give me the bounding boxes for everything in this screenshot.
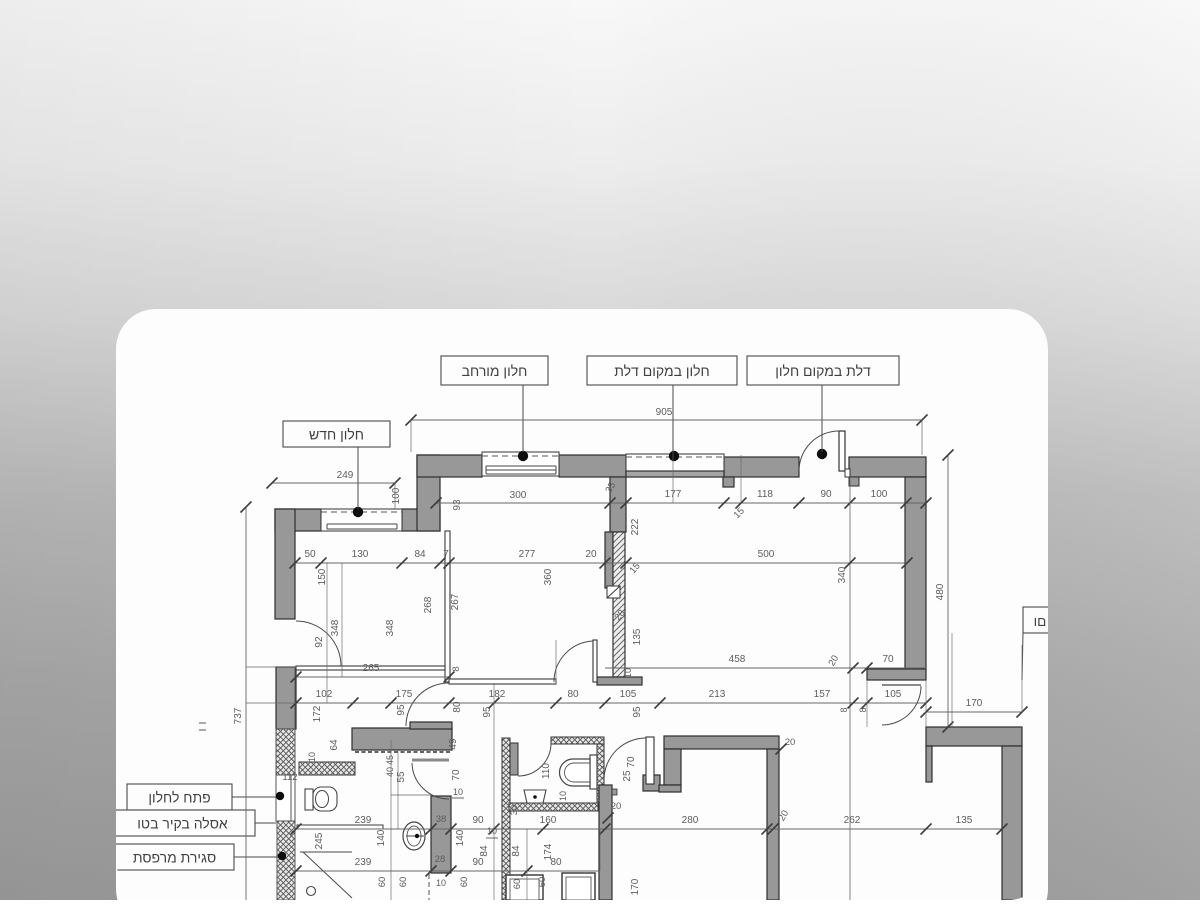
svg-text:55: 55 bbox=[396, 771, 407, 783]
svg-text:280: 280 bbox=[682, 815, 699, 826]
svg-text:8: 8 bbox=[839, 707, 849, 712]
svg-text:100: 100 bbox=[391, 487, 402, 504]
svg-text:50: 50 bbox=[304, 549, 316, 560]
svg-text:175: 175 bbox=[396, 689, 413, 700]
svg-text:30: 30 bbox=[509, 805, 520, 816]
svg-text:300: 300 bbox=[510, 490, 527, 501]
svg-text:135: 135 bbox=[956, 815, 973, 826]
svg-text:170: 170 bbox=[630, 878, 641, 895]
svg-text:10: 10 bbox=[623, 668, 633, 678]
svg-text:חלון חדש: חלון חדש bbox=[309, 427, 364, 443]
svg-text:130: 130 bbox=[352, 549, 369, 560]
svg-text:64: 64 bbox=[329, 739, 340, 751]
svg-text:458: 458 bbox=[729, 654, 746, 665]
svg-text:70: 70 bbox=[882, 654, 894, 665]
svg-text:84: 84 bbox=[479, 845, 490, 857]
svg-text:905: 905 bbox=[656, 407, 673, 418]
svg-text:8: 8 bbox=[451, 666, 462, 671]
svg-text:10: 10 bbox=[558, 791, 568, 801]
svg-text:480: 480 bbox=[935, 583, 946, 600]
svg-text:7: 7 bbox=[443, 549, 449, 560]
svg-text:חלון במקום דלת: חלון במקום דלת bbox=[614, 363, 710, 379]
svg-text:140: 140 bbox=[376, 829, 387, 846]
svg-text:172: 172 bbox=[312, 705, 323, 722]
svg-text:157: 157 bbox=[814, 689, 831, 700]
svg-text:265: 265 bbox=[363, 663, 380, 674]
svg-text:סגירת מרפסת: סגירת מרפסת bbox=[133, 850, 216, 866]
svg-text:112: 112 bbox=[282, 772, 297, 783]
svg-text:38: 38 bbox=[436, 814, 447, 825]
svg-text:95: 95 bbox=[632, 706, 643, 718]
svg-text:239: 239 bbox=[355, 815, 372, 826]
svg-text:105: 105 bbox=[885, 689, 902, 700]
svg-text:737: 737 bbox=[233, 707, 244, 724]
svg-text:245: 245 bbox=[314, 832, 325, 849]
svg-text:20: 20 bbox=[585, 549, 597, 560]
svg-text:140: 140 bbox=[455, 829, 466, 846]
svg-text:84: 84 bbox=[414, 549, 426, 560]
svg-text:60: 60 bbox=[537, 877, 548, 888]
svg-text:182: 182 bbox=[489, 689, 506, 700]
svg-text:60: 60 bbox=[398, 877, 409, 888]
svg-text:135: 135 bbox=[632, 628, 643, 645]
svg-text:95: 95 bbox=[482, 706, 493, 718]
svg-text:10: 10 bbox=[307, 752, 317, 762]
svg-text:213: 213 bbox=[709, 689, 726, 700]
svg-text:28: 28 bbox=[435, 854, 446, 865]
svg-text:110: 110 bbox=[541, 763, 552, 779]
svg-text:348: 348 bbox=[330, 619, 341, 636]
svg-text:150: 150 bbox=[317, 568, 328, 585]
svg-text:100: 100 bbox=[871, 489, 888, 500]
svg-text:80: 80 bbox=[567, 689, 579, 700]
svg-text:90: 90 bbox=[472, 815, 484, 826]
svg-text:70: 70 bbox=[626, 756, 637, 768]
svg-text:20: 20 bbox=[611, 801, 622, 812]
svg-text:160: 160 bbox=[540, 815, 557, 826]
svg-text:249: 249 bbox=[337, 470, 354, 481]
svg-text:500: 500 bbox=[758, 549, 775, 560]
svg-text:262: 262 bbox=[844, 815, 861, 826]
svg-text:95: 95 bbox=[396, 704, 407, 716]
svg-text:8: 8 bbox=[858, 707, 868, 712]
svg-text:25: 25 bbox=[622, 770, 633, 782]
svg-text:92: 92 bbox=[314, 636, 325, 648]
svg-text:40: 40 bbox=[385, 767, 395, 777]
svg-text:277: 277 bbox=[519, 549, 536, 560]
svg-text:118: 118 bbox=[757, 489, 773, 500]
svg-text:222: 222 bbox=[630, 518, 641, 535]
svg-text:90: 90 bbox=[820, 489, 832, 500]
svg-text:10: 10 bbox=[436, 878, 446, 888]
svg-text:אסלה בקיר בטו: אסלה בקיר בטו bbox=[137, 816, 228, 832]
svg-text:239: 239 bbox=[355, 857, 372, 868]
svg-text:80: 80 bbox=[452, 701, 463, 713]
svg-text:60: 60 bbox=[459, 877, 470, 888]
svg-text:םו: םו bbox=[1034, 614, 1047, 629]
svg-text:84: 84 bbox=[511, 845, 522, 857]
svg-text:268: 268 bbox=[423, 596, 434, 613]
svg-text:267: 267 bbox=[450, 593, 461, 610]
svg-text:חלון מורחב: חלון מורחב bbox=[462, 363, 528, 379]
svg-text:60: 60 bbox=[377, 877, 388, 888]
svg-text:93: 93 bbox=[452, 499, 463, 511]
svg-text:20: 20 bbox=[785, 737, 796, 748]
svg-text:דלת במקום חלון: דלת במקום חלון bbox=[775, 363, 871, 379]
svg-text:45: 45 bbox=[385, 755, 395, 765]
svg-text:170: 170 bbox=[966, 698, 983, 709]
svg-text:90: 90 bbox=[472, 857, 484, 868]
svg-text:105: 105 bbox=[620, 689, 637, 700]
svg-text:70: 70 bbox=[451, 769, 462, 781]
svg-text:102: 102 bbox=[316, 689, 333, 700]
svg-text:פתח לחלון: פתח לחלון bbox=[148, 790, 210, 806]
svg-text:340: 340 bbox=[837, 566, 848, 583]
svg-text:348: 348 bbox=[385, 619, 396, 636]
svg-text:360: 360 bbox=[543, 568, 554, 585]
svg-text:60: 60 bbox=[512, 879, 523, 890]
svg-text:174: 174 bbox=[543, 843, 554, 860]
svg-text:49: 49 bbox=[448, 738, 459, 750]
svg-text:10: 10 bbox=[487, 826, 497, 836]
svg-text:10: 10 bbox=[453, 787, 463, 797]
